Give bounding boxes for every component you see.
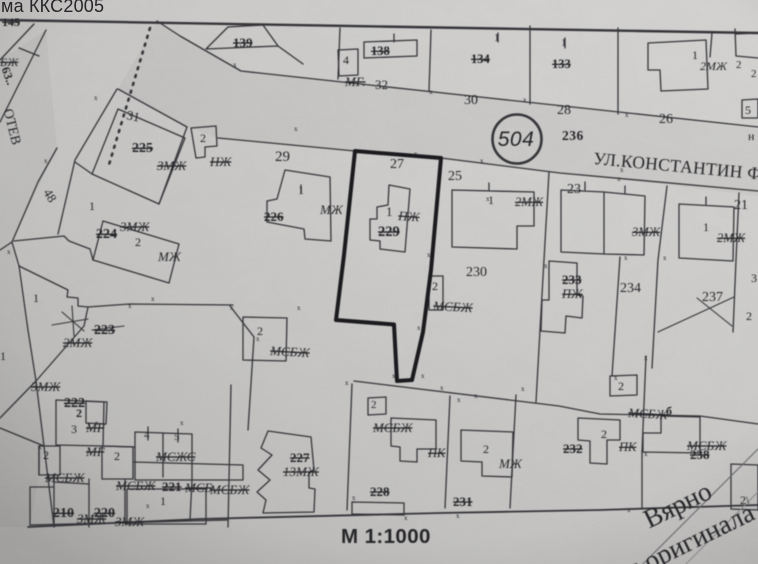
svg-text:5: 5 — [174, 431, 180, 443]
svg-text:x: x — [180, 419, 184, 427]
svg-text:x: x — [620, 166, 624, 174]
svg-text:237: 237 — [702, 290, 723, 305]
svg-text:2: 2 — [114, 449, 120, 463]
svg-text:ЗМЖ: ЗМЖ — [115, 514, 145, 529]
svg-text:232: 232 — [563, 441, 583, 456]
svg-text:1: 1 — [298, 183, 304, 197]
svg-text:x: x — [474, 392, 478, 400]
svg-text:3МЖ: 3МЖ — [30, 379, 61, 394]
svg-text:1: 1 — [703, 220, 709, 234]
svg-text:4: 4 — [343, 53, 349, 67]
svg-text:x: x — [625, 111, 629, 119]
svg-text:МГ: МГ — [85, 444, 105, 459]
svg-text:23: 23 — [567, 182, 581, 197]
svg-text:227: 227 — [290, 450, 310, 465]
svg-text:x: x — [128, 302, 132, 310]
svg-text:233: 233 — [562, 272, 582, 287]
svg-text:МСБЖ: МСБЖ — [269, 343, 311, 360]
svg-text:1: 1 — [160, 494, 166, 508]
svg-text:x: x — [627, 506, 631, 514]
svg-text:504: 504 — [498, 128, 535, 151]
svg-text:13МЖ: 13МЖ — [283, 464, 320, 479]
svg-text:ПК: ПК — [427, 446, 446, 460]
svg-text:x: x — [486, 195, 490, 203]
svg-text:210: 210 — [53, 506, 74, 521]
svg-text:32: 32 — [375, 77, 388, 92]
svg-text:x: x — [440, 384, 444, 392]
svg-text:2: 2 — [483, 442, 489, 456]
svg-text:НЖ: НЖ — [209, 154, 232, 169]
svg-text:x: x — [644, 450, 648, 458]
svg-text:x: x — [95, 419, 99, 427]
svg-text:x: x — [94, 94, 98, 102]
svg-text:x: x — [644, 354, 648, 362]
svg-text:x: x — [146, 502, 150, 510]
svg-text:x: x — [392, 372, 396, 380]
svg-text:x: x — [230, 304, 234, 312]
svg-text:x: x — [7, 248, 11, 256]
svg-text:139: 139 — [233, 35, 253, 50]
svg-text:x: x — [233, 61, 237, 69]
svg-text:225: 225 — [132, 141, 153, 156]
svg-text:226: 226 — [264, 209, 284, 224]
svg-text:3МЖ: 3МЖ — [119, 219, 150, 234]
svg-text:ПЖ: ПЖ — [561, 287, 583, 301]
svg-text:МСБ: МСБ — [184, 480, 213, 495]
svg-text:x: x — [663, 254, 667, 262]
svg-text:МСБЖ: МСБЖ — [372, 420, 413, 435]
svg-text:ма ККС2005: ма ККС2005 — [1, 0, 104, 16]
svg-text:б: б — [666, 404, 672, 418]
svg-text:x: x — [256, 335, 260, 343]
svg-text:МЖ: МЖ — [498, 456, 523, 471]
svg-text:МСБЖ: МСБЖ — [44, 470, 85, 485]
svg-text:x: x — [429, 88, 433, 96]
svg-text:231: 231 — [453, 494, 473, 509]
svg-text:5: 5 — [745, 103, 751, 117]
svg-text:x: x — [614, 374, 618, 382]
svg-text:МСЖС: МСЖС — [155, 449, 196, 464]
svg-text:224: 224 — [96, 227, 117, 242]
svg-text:145: 145 — [2, 15, 20, 29]
svg-text:x: x — [294, 125, 298, 133]
svg-text:x: x — [297, 304, 301, 312]
svg-text:234: 234 — [620, 281, 641, 296]
svg-text:133: 133 — [552, 57, 571, 71]
svg-text:236: 236 — [562, 128, 584, 143]
svg-text:МСБЖ: МСБЖ — [432, 298, 474, 315]
svg-text:26: 26 — [659, 112, 673, 127]
svg-text:134: 134 — [471, 52, 491, 66]
svg-text:2: 2 — [432, 279, 438, 293]
svg-text:x: x — [624, 254, 628, 262]
svg-text:29: 29 — [275, 149, 290, 165]
svg-text:x: x — [414, 150, 418, 158]
svg-text:x: x — [151, 295, 155, 303]
svg-text:2\: 2\ — [740, 493, 750, 507]
svg-text:229: 229 — [378, 224, 400, 240]
svg-text:x: x — [456, 512, 460, 520]
svg-text:ПК: ПК — [618, 440, 637, 454]
svg-text:1: 1 — [561, 37, 567, 49]
svg-text:2: 2 — [135, 235, 141, 249]
svg-text:x: x — [352, 494, 356, 502]
svg-text:МЖ: МЖ — [157, 249, 182, 264]
svg-text:2МЖ: 2МЖ — [717, 231, 746, 245]
svg-text:x: x — [523, 96, 527, 104]
svg-text:228: 228 — [370, 484, 390, 499]
svg-text:x: x — [38, 443, 42, 451]
svg-text:2МЖ: 2МЖ — [700, 59, 728, 73]
svg-text:1: 1 — [0, 349, 6, 363]
svg-text:ПЖ: ПЖ — [397, 208, 421, 225]
svg-text:x: x — [345, 379, 349, 387]
svg-text:МЖ: МЖ — [319, 202, 344, 217]
svg-text:223: 223 — [94, 323, 115, 338]
svg-text:2МЖ: 2МЖ — [515, 195, 544, 209]
svg-text:1: 1 — [386, 204, 393, 219]
svg-text:30: 30 — [464, 93, 478, 108]
svg-text:М 1:1000: М 1:1000 — [341, 525, 431, 548]
svg-text:27: 27 — [390, 157, 404, 172]
svg-text:x: x — [427, 251, 431, 259]
svg-text:1: 1 — [692, 48, 698, 62]
svg-text:МГ.: МГ. — [344, 74, 366, 89]
svg-text:x: x — [44, 157, 48, 165]
svg-text:МСБЖ: МСБЖ — [115, 478, 156, 493]
svg-text:2: 2 — [736, 59, 742, 71]
svg-text:2: 2 — [76, 406, 82, 420]
svg-text:ЗМЖ: ЗМЖ — [77, 511, 107, 526]
svg-text:3: 3 — [751, 271, 757, 285]
svg-text:3: 3 — [71, 422, 77, 436]
svg-text:x: x — [417, 324, 421, 332]
svg-text:2: 2 — [751, 68, 757, 80]
svg-text:138: 138 — [371, 44, 390, 58]
svg-text:28: 28 — [557, 103, 571, 118]
svg-text:221: 221 — [162, 479, 182, 494]
svg-text:1: 1 — [89, 199, 95, 213]
svg-text:25: 25 — [448, 169, 462, 184]
svg-text:1: 1 — [494, 32, 500, 44]
svg-text:2МЖ: 2МЖ — [63, 335, 93, 350]
svg-text:2: 2 — [601, 427, 607, 441]
svg-text:2: 2 — [746, 309, 752, 323]
svg-text:2: 2 — [371, 399, 377, 411]
svg-text:МСБЖ: МСБЖ — [627, 405, 669, 422]
svg-text:2: 2 — [618, 379, 624, 393]
svg-text:2: 2 — [43, 448, 49, 462]
svg-text:x: x — [617, 175, 621, 183]
svg-text:230: 230 — [466, 265, 487, 280]
svg-text:ЗМЖ: ЗМЖ — [157, 158, 187, 173]
svg-text:238: 238 — [690, 447, 710, 462]
svg-text:МСБЖ: МСБЖ — [209, 482, 250, 497]
svg-text:x: x — [421, 372, 425, 380]
svg-text:4: 4 — [144, 429, 150, 441]
svg-text:x: x — [544, 262, 548, 270]
svg-text:2: 2 — [200, 131, 206, 145]
svg-text:x: x — [457, 396, 461, 404]
svg-text:н: н — [748, 129, 755, 143]
svg-text:x: x — [521, 385, 525, 393]
svg-text:x: x — [404, 514, 408, 522]
svg-text:1: 1 — [33, 291, 39, 305]
svg-text:3МЖ: 3МЖ — [631, 225, 661, 239]
svg-text:21: 21 — [734, 198, 748, 213]
svg-text:x: x — [480, 157, 484, 165]
